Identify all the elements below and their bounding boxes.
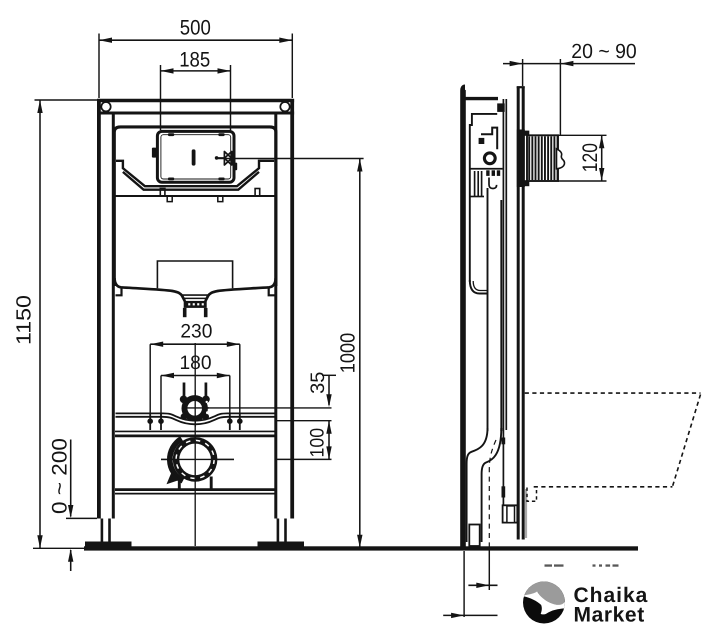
svg-text:20 ~ 90: 20 ~ 90 — [571, 40, 636, 63]
svg-text:1150: 1150 — [13, 295, 36, 345]
svg-text:0 ~ 200: 0 ~ 200 — [49, 438, 72, 514]
svg-text:1000: 1000 — [337, 333, 360, 374]
svg-text:120: 120 — [579, 143, 602, 172]
svg-text:185: 185 — [179, 48, 210, 71]
svg-text:500: 500 — [180, 16, 211, 39]
svg-text:100: 100 — [307, 428, 329, 458]
svg-text:230: 230 — [180, 320, 212, 342]
svg-text:Market: Market — [573, 604, 644, 627]
